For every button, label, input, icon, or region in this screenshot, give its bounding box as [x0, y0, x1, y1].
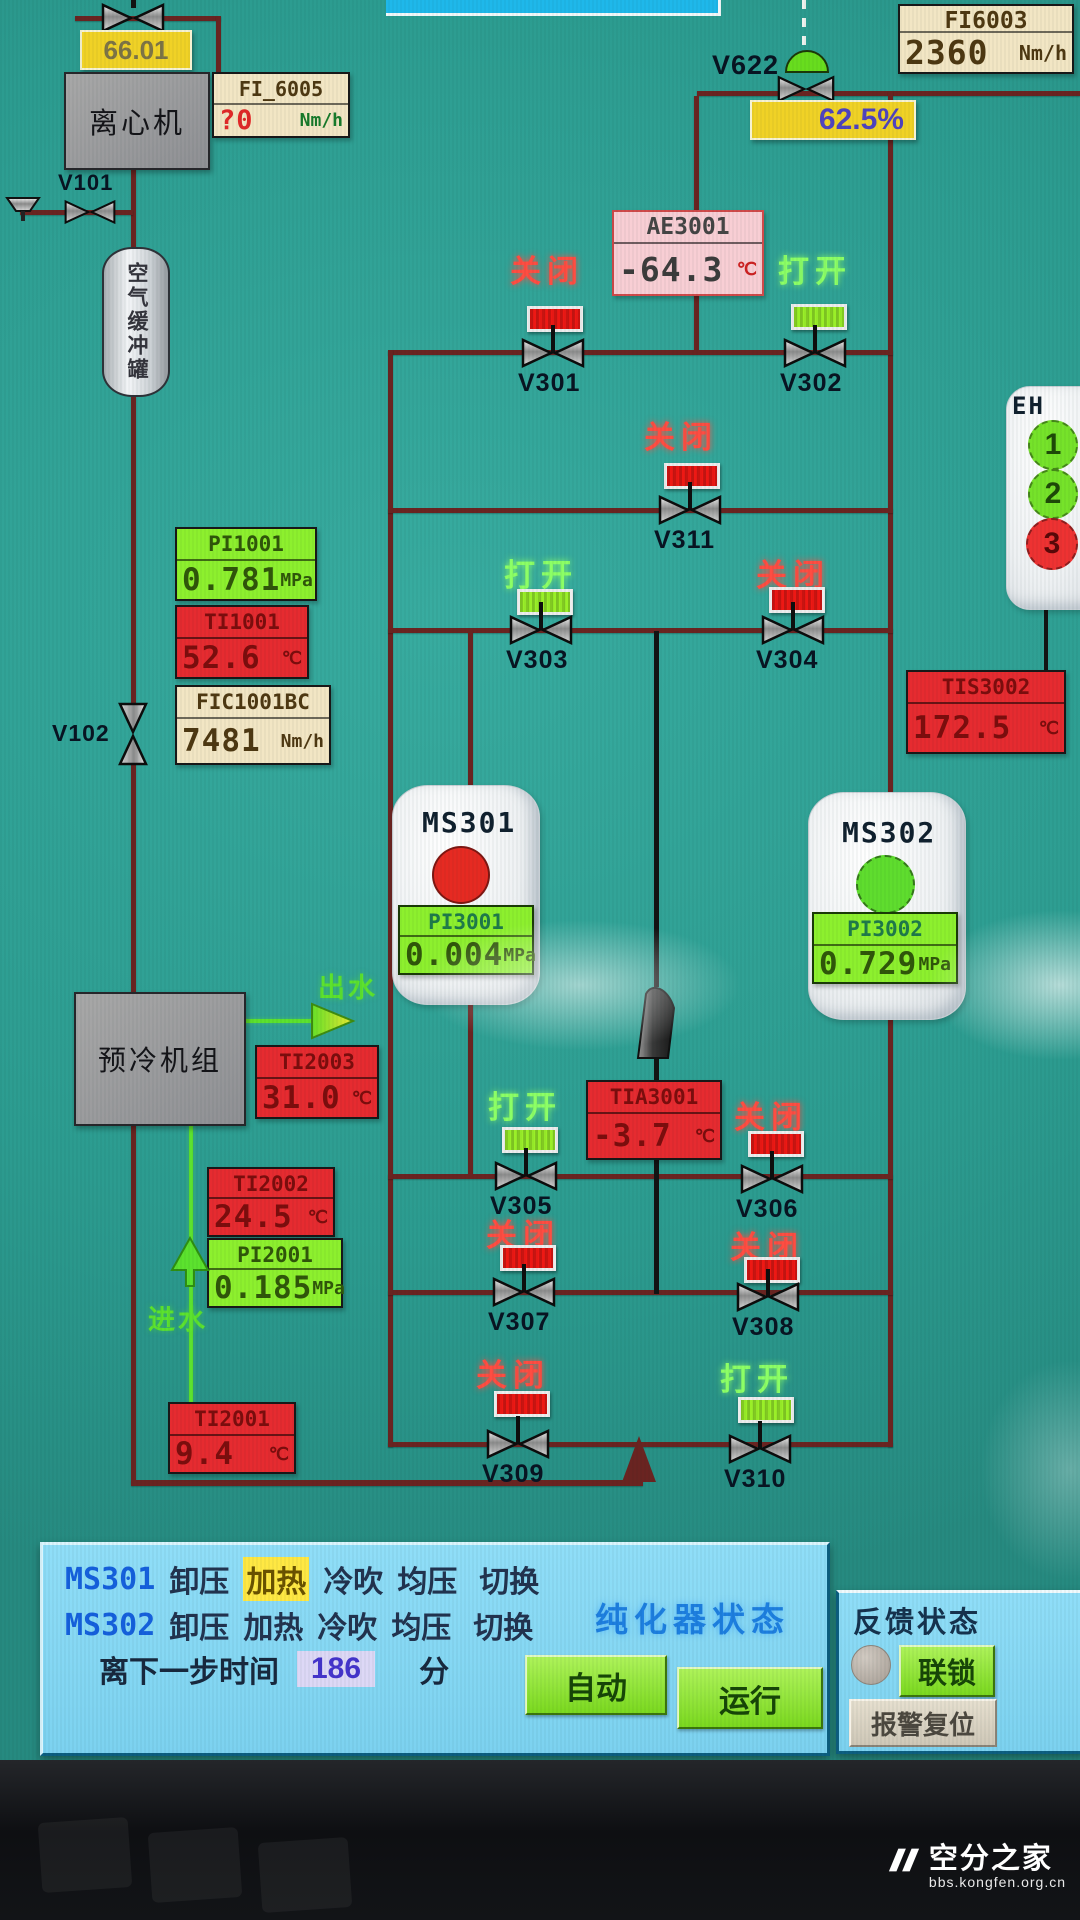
- instrument-tag: TI2002: [209, 1169, 333, 1199]
- instrument-unit: ℃: [269, 1444, 289, 1465]
- water-out-line: [242, 1019, 314, 1023]
- instrument-fi6003: FI6003 2360Nm/h: [898, 4, 1074, 74]
- valve-v301-label: V301: [518, 369, 580, 398]
- step-heat-active: 加热: [243, 1557, 309, 1601]
- instrument-tag: PI3001: [400, 907, 532, 937]
- step-coldblow: 冷吹: [323, 1557, 383, 1601]
- precool-unit-label: 预冷机组: [98, 1039, 222, 1079]
- instrument-value: 0.729: [819, 946, 917, 982]
- pipe-segment: [654, 631, 659, 987]
- adsorber-ms302-label: MS302: [842, 816, 936, 849]
- instrument-fic1001bc: FIC1001BC 7481Nm/h: [175, 685, 331, 765]
- photo-glare: [980, 1360, 1080, 1580]
- step-heat: 加热: [243, 1603, 303, 1647]
- pipe-segment: [888, 91, 893, 794]
- instrument-unit: ℃: [737, 259, 757, 280]
- pipe-segment: [216, 16, 221, 74]
- instrument-pi1001: PI1001 0.781MPa: [175, 527, 317, 601]
- instrument-tag: FI_6005: [214, 74, 348, 105]
- instrument-unit: MPa: [280, 570, 313, 591]
- instrument-tag: AE3001: [614, 212, 762, 244]
- flow-arrow-up-icon: [622, 1436, 656, 1482]
- water-out-label: 出水: [318, 966, 378, 1005]
- purifier-status-title: 纯化器状态: [595, 1593, 790, 1641]
- instrument-unit: MPa: [503, 945, 536, 966]
- step-switch: 切换: [479, 1557, 539, 1601]
- instrument-value: 7481: [182, 723, 261, 759]
- valve-v307-label: V307: [488, 1308, 550, 1337]
- pipe-segment: [131, 754, 136, 994]
- valve-v308-indicator: [744, 1257, 800, 1283]
- top-valve-value: 66.01: [103, 35, 168, 66]
- pipe-segment: [694, 290, 699, 352]
- instrument-value: -3.7: [593, 1118, 672, 1154]
- water-in-arrow-icon: [168, 1236, 212, 1288]
- next-step-timer: 离下一步时间 186 分: [99, 1647, 449, 1691]
- valve-v309-symbol[interactable]: [486, 1428, 550, 1460]
- valve-v308-label: V308: [732, 1313, 794, 1342]
- instrument-tag: TIS3002: [908, 672, 1064, 704]
- heater-stage-3: 3: [1026, 518, 1078, 570]
- valve-v305-state: 打开: [488, 1082, 562, 1127]
- watermark-logo-icon: [887, 1844, 921, 1876]
- instrument-fi6005: FI_6005 ?0Nm/h: [212, 72, 350, 138]
- instrument-unit: Nm/h: [300, 110, 343, 131]
- electric-heater-label: EH: [1012, 392, 1045, 420]
- pipe-dashed-segment: [802, 0, 806, 52]
- valve-v301-symbol[interactable]: [521, 337, 585, 369]
- sequence-tag: MS302: [65, 1608, 155, 1643]
- instrument-tag: TI1001: [177, 607, 307, 639]
- air-buffer-tank: 空气缓冲罐: [102, 247, 170, 397]
- instrument-pi2001: PI2001 0.185MPa: [207, 1238, 343, 1308]
- valve-v311-state: 关闭: [644, 412, 718, 457]
- timer-value: 186: [297, 1651, 375, 1687]
- valve-v306-symbol[interactable]: [740, 1163, 804, 1195]
- instrument-unit: ℃: [352, 1088, 372, 1109]
- instrument-unit: Nm/h: [1019, 41, 1067, 65]
- valve-v304-symbol[interactable]: [761, 614, 825, 646]
- instrument-unit: ℃: [1039, 718, 1059, 739]
- valve-v303-label: V303: [506, 646, 568, 675]
- water-out-arrow-icon: [310, 1002, 356, 1040]
- air-buffer-tank-label: 空气缓冲罐: [121, 262, 151, 382]
- pipe-segment: [388, 1290, 893, 1295]
- instrument-value: 24.5: [214, 1199, 293, 1235]
- instrument-tis3002: TIS3002 172.5℃: [906, 670, 1066, 754]
- instrument-unit: ℃: [282, 648, 302, 669]
- watermark-url: bbs.kongfen.org.cn: [929, 1874, 1066, 1890]
- run-status-button-label: 运行: [719, 1676, 781, 1721]
- valve-v304-indicator: [769, 587, 825, 613]
- pipe-segment: [388, 1174, 893, 1179]
- feedback-status-title: 反馈状态: [853, 1599, 981, 1641]
- hopper-icon: [5, 195, 43, 225]
- valve-v308-symbol[interactable]: [736, 1281, 800, 1313]
- instrument-value: 9.4: [175, 1436, 234, 1472]
- instrument-tag: PI2001: [209, 1240, 341, 1270]
- pipe-segment: [1044, 604, 1048, 670]
- valve-v303-symbol[interactable]: [509, 614, 573, 646]
- valve-v310-state: 打开: [720, 1354, 794, 1399]
- feedback-lamp: [851, 1645, 891, 1685]
- valve-v305-symbol[interactable]: [494, 1160, 558, 1192]
- valve-v302-indicator: [791, 304, 847, 330]
- interlock-button[interactable]: 联锁: [899, 1645, 995, 1697]
- instrument-value: 0.185: [214, 1270, 312, 1306]
- valve-v306-indicator: [748, 1131, 804, 1157]
- heater-stage-number: 1: [1045, 428, 1062, 462]
- heater-stage-2: 2: [1028, 469, 1078, 519]
- instrument-tag: PI1001: [177, 529, 315, 561]
- valve-v311-symbol[interactable]: [658, 494, 722, 526]
- heater-stage-number: 3: [1044, 527, 1061, 561]
- pipe-segment: [468, 631, 473, 789]
- valve-v304-label: V304: [756, 646, 818, 675]
- valve-v302-symbol[interactable]: [783, 337, 847, 369]
- step-switch: 切换: [473, 1603, 533, 1647]
- valve-v622-actuator-icon: [784, 50, 830, 74]
- instrument-value: -64.3: [619, 250, 723, 289]
- sequence-line-ms301: MS301 卸压 加热 冷吹 均压 切换: [65, 1557, 539, 1601]
- instrument-tag: TIA3001: [588, 1082, 720, 1114]
- instrument-unit: MPa: [312, 1278, 345, 1299]
- pipe-segment: [131, 390, 136, 714]
- valve-v102-symbol[interactable]: [117, 702, 149, 766]
- instrument-unit: ℃: [308, 1207, 328, 1228]
- valve-v302-state: 打开: [778, 246, 852, 291]
- instrument-value: ?0: [219, 105, 254, 136]
- instrument-tag: TI2003: [257, 1047, 377, 1079]
- hmi-purifier-screen: 66.01 离心机 FI_6005 ?0Nm/h V101 空气缓冲罐 PI10…: [0, 0, 1080, 1920]
- pipe-segment: [468, 1001, 473, 1177]
- feedback-status-panel: 反馈状态 联锁 报警复位: [836, 1590, 1080, 1754]
- heater-stage-number: 2: [1045, 477, 1062, 511]
- valve-v307-indicator: [500, 1245, 556, 1271]
- instrument-pi3002: PI3002 0.729MPa: [812, 912, 958, 984]
- instrument-ti1001: TI1001 52.6℃: [175, 605, 309, 679]
- instrument-value: 0.004: [405, 937, 503, 973]
- valve-v101-symbol[interactable]: [64, 199, 116, 225]
- keyboard-key-hint: [38, 1817, 133, 1893]
- instrument-value: 2360: [905, 33, 988, 72]
- instrument-value: 0.781: [182, 562, 280, 598]
- centrifuge-label: 离心机: [89, 100, 185, 142]
- keyboard-key-hint: [258, 1837, 353, 1913]
- pipe-segment: [654, 1154, 659, 1294]
- valve-v310-symbol[interactable]: [728, 1433, 792, 1465]
- instrument-pi3001: PI3001 0.004MPa: [398, 905, 534, 975]
- instrument-tag: PI3002: [814, 914, 956, 946]
- valve-v309-state: 关闭: [476, 1350, 550, 1395]
- heater-stage-1: 1: [1028, 420, 1078, 470]
- pipe-segment: [388, 508, 893, 513]
- sequence-tag: MS301: [65, 1562, 155, 1597]
- sequence-line-ms302: MS302 卸压 加热 冷吹 均压 切换: [65, 1603, 533, 1647]
- step-coldblow: 冷吹: [317, 1603, 377, 1647]
- instrument-tia3001: TIA3001 -3.7℃: [586, 1080, 722, 1160]
- valve-v305-indicator: [502, 1127, 558, 1153]
- watermark: 空分之家 bbs.kongfen.org.cn: [887, 1844, 1066, 1890]
- valve-v306-label: V306: [736, 1195, 798, 1224]
- pipe-segment: [888, 1016, 893, 1447]
- valve-v102-label: V102: [52, 720, 110, 747]
- screen-bezel-area: 空分之家 bbs.kongfen.org.cn: [0, 1760, 1080, 1920]
- instrument-ti2002: TI2002 24.5℃: [207, 1167, 335, 1237]
- instrument-unit: ℃: [695, 1126, 715, 1147]
- valve-v302-label: V302: [780, 369, 842, 398]
- pipe-segment: [131, 1480, 643, 1486]
- instrument-unit: Nm/h: [281, 731, 324, 752]
- valve-v310-indicator: [738, 1397, 794, 1423]
- valve-v307-symbol[interactable]: [492, 1276, 556, 1308]
- adsorber-ms302-status-circle: [856, 855, 915, 914]
- instrument-tag: FI6003: [900, 6, 1072, 33]
- auto-mode-button[interactable]: 自动: [525, 1655, 667, 1715]
- pipe-segment: [131, 164, 136, 249]
- instrument-unit: MPa: [918, 954, 951, 975]
- run-status-button[interactable]: 运行: [677, 1667, 823, 1729]
- valve-v303-indicator: [517, 589, 573, 615]
- precool-unit-box: 预冷机组: [74, 992, 246, 1126]
- step-equalize: 均压: [391, 1603, 451, 1647]
- valve-v311-label: V311: [654, 526, 715, 555]
- interlock-button-label: 联锁: [918, 1650, 976, 1692]
- instrument-value: 31.0: [262, 1080, 341, 1116]
- top-valve-value-box: 66.01: [80, 30, 192, 70]
- valve-v310-label: V310: [724, 1465, 786, 1494]
- valve-v301-state: 关闭: [510, 246, 584, 291]
- alarm-reset-button-label: 报警复位: [871, 1705, 975, 1742]
- instrument-value: 172.5: [913, 710, 1011, 746]
- centrifuge-box: 离心机: [64, 72, 210, 170]
- adsorber-ms301-status-circle: [432, 846, 490, 904]
- instrument-tag: TI2001: [170, 1404, 294, 1436]
- valve-v309-label: V309: [482, 1460, 544, 1489]
- instrument-value: 52.6: [182, 640, 261, 676]
- instrument-ti2003: TI2003 31.0℃: [255, 1045, 379, 1119]
- watermark-brand: 空分之家: [929, 1844, 1066, 1874]
- auto-mode-button-label: 自动: [565, 1663, 627, 1708]
- instrument-ae3001: AE3001 -64.3℃: [612, 210, 764, 296]
- valve-v309-indicator: [494, 1391, 550, 1417]
- timer-label: 离下一步时间: [99, 1647, 279, 1691]
- valve-v622-opening-box[interactable]: 62.5%: [750, 100, 916, 140]
- instrument-ti2001: TI2001 9.4℃: [168, 1402, 296, 1474]
- step-unload: 卸压: [169, 1557, 229, 1601]
- water-in-label: 进水: [148, 1298, 208, 1337]
- alarm-reset-button[interactable]: 报警复位: [849, 1699, 997, 1747]
- silencer-cone-icon: [632, 980, 680, 1060]
- keyboard-key-hint: [148, 1827, 243, 1903]
- valve-v622-opening-value: 62.5%: [819, 103, 904, 137]
- step-unload: 卸压: [169, 1603, 229, 1647]
- pipe-segment: [694, 96, 699, 212]
- valve-v101-label: V101: [58, 170, 113, 196]
- valve-v622-label: V622: [712, 50, 779, 81]
- timer-unit: 分: [419, 1647, 449, 1691]
- instrument-tag: FIC1001BC: [177, 687, 329, 719]
- step-equalize: 均压: [397, 1557, 457, 1601]
- pipe-segment: [131, 1120, 136, 1484]
- adsorber-ms301-label: MS301: [422, 806, 516, 839]
- purifier-sequence-panel: MS301 卸压 加热 冷吹 均压 切换 MS302 卸压 加热 冷吹 均压 切…: [40, 1542, 830, 1756]
- top-window-fragment: [386, 0, 721, 16]
